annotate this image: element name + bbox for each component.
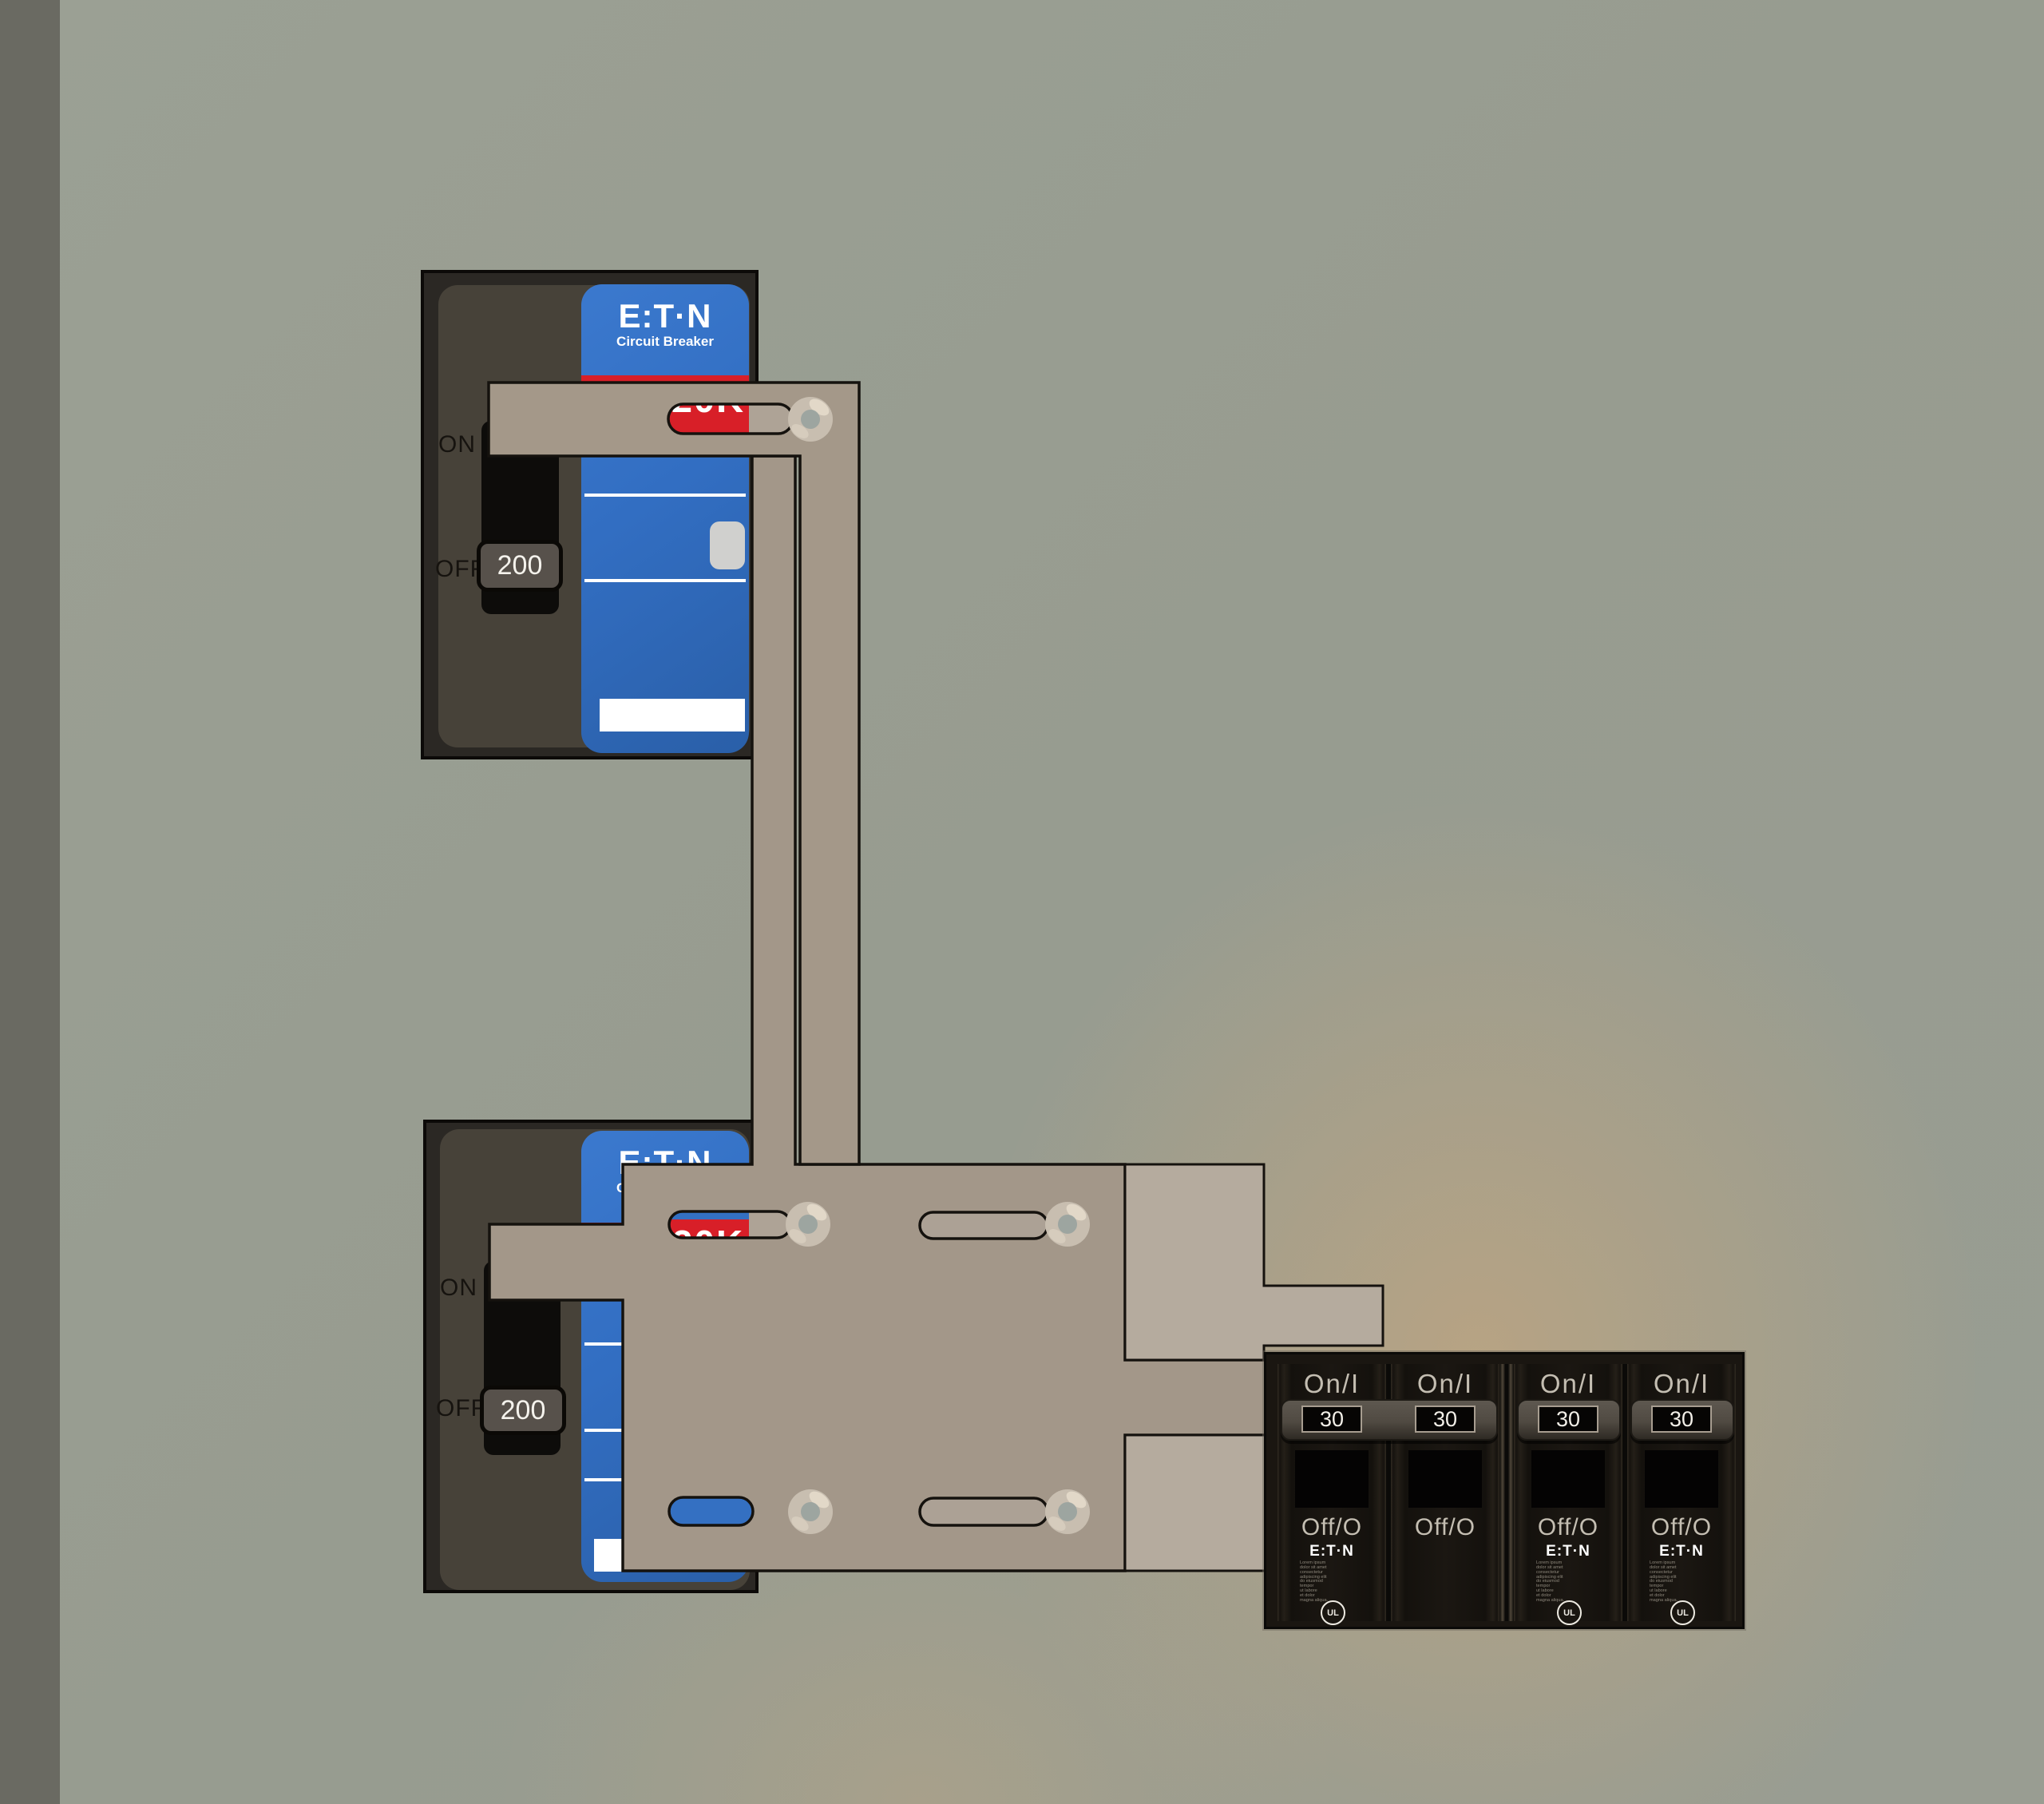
handle-window bbox=[1645, 1450, 1718, 1508]
eaton-logo: E:T·N bbox=[1514, 1543, 1622, 1560]
unit-divider bbox=[1499, 1364, 1514, 1621]
off-marking: Off/O bbox=[1514, 1514, 1622, 1541]
on-marking: On/I bbox=[1277, 1369, 1386, 1399]
handle-window bbox=[1295, 1450, 1369, 1508]
ul-mark-icon: UL bbox=[1557, 1600, 1582, 1625]
off-marking: Off/O bbox=[1391, 1514, 1499, 1541]
interlock-slot-upper-right bbox=[920, 1212, 1048, 1239]
interlock-plate-lower[interactable] bbox=[489, 456, 1266, 1571]
on-marking: On/I bbox=[1391, 1369, 1499, 1399]
interlock-backing-plate-upper[interactable] bbox=[1125, 1164, 1383, 1360]
eaton-logo: E:T·N bbox=[1627, 1543, 1736, 1560]
amp-rating-window: 30 bbox=[1538, 1406, 1598, 1433]
ul-mark-icon: UL bbox=[1670, 1600, 1695, 1625]
interlock-slot-lower-left bbox=[669, 1497, 753, 1525]
eaton-logo: E:T·N bbox=[1277, 1543, 1386, 1560]
amp-rating-window: 30 bbox=[1301, 1406, 1362, 1433]
panel-wall: E:T·N Circuit Breaker ON OFF 200 E:T·N C… bbox=[0, 0, 2044, 1804]
amp-rating-window: 30 bbox=[1415, 1406, 1476, 1433]
interlock-plate-upper[interactable] bbox=[489, 383, 859, 1164]
spec-text: Lorem ipsum dolor sit amet consectetur a… bbox=[1536, 1561, 1608, 1604]
off-marking: Off/O bbox=[1627, 1514, 1736, 1541]
on-marking: On/I bbox=[1627, 1369, 1736, 1399]
spec-text: Lorem ipsum dolor sit amet consectetur a… bbox=[1300, 1561, 1372, 1604]
handle-window bbox=[1408, 1450, 1482, 1508]
interlock-slot-lower-right bbox=[920, 1498, 1048, 1525]
ul-mark-icon: UL bbox=[1321, 1600, 1345, 1625]
branch-breaker-module: On/I Off/O E:T·N Lorem ipsum dolor sit a… bbox=[1264, 1352, 1745, 1629]
on-marking: On/I bbox=[1514, 1369, 1622, 1399]
interlock-backing-plate-lower[interactable] bbox=[1125, 1435, 1266, 1571]
handle-window bbox=[1531, 1450, 1605, 1508]
spec-text: Lorem ipsum dolor sit amet consectetur a… bbox=[1650, 1561, 1721, 1604]
amp-rating-window: 30 bbox=[1651, 1406, 1712, 1433]
off-marking: Off/O bbox=[1277, 1514, 1386, 1541]
